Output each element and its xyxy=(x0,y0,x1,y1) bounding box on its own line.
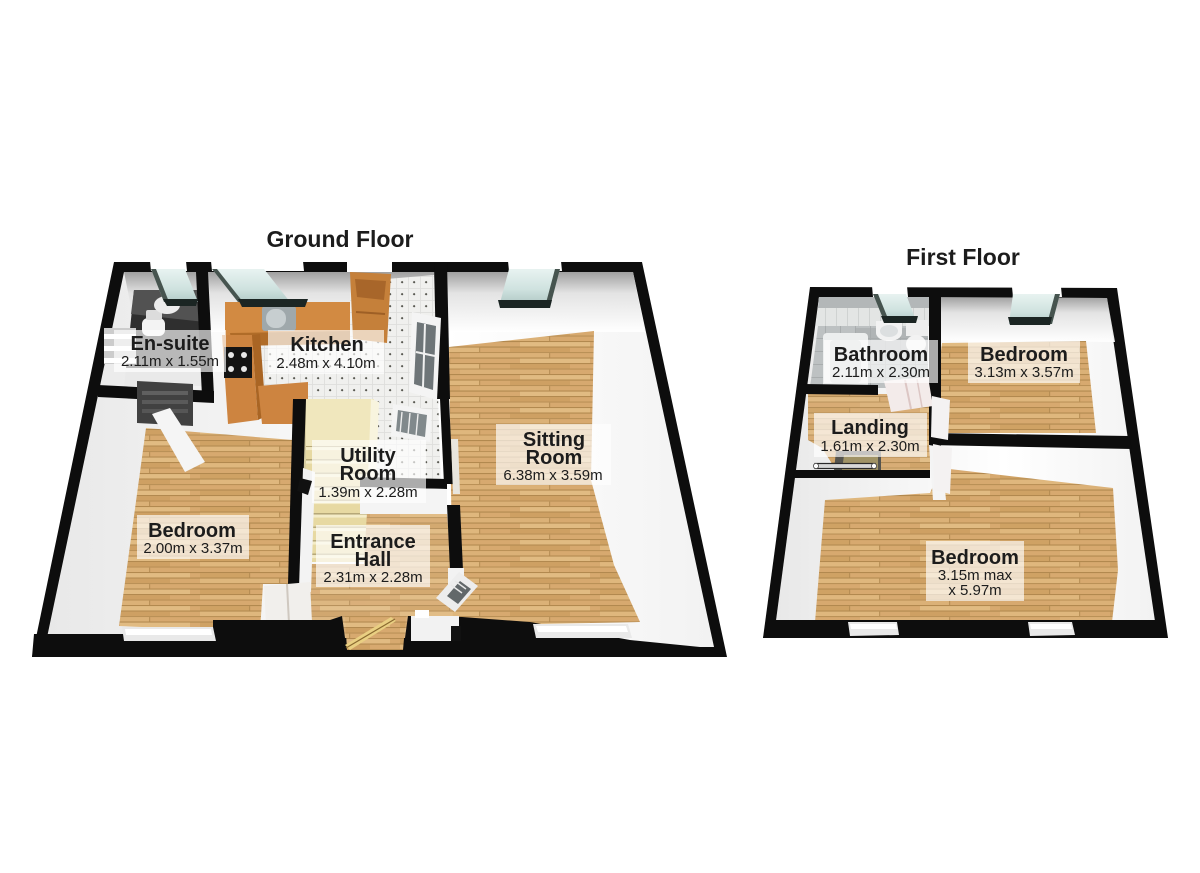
svg-text:3.13m x 3.57m: 3.13m x 3.57m xyxy=(974,364,1073,381)
svg-text:2.11m x 2.30m: 2.11m x 2.30m xyxy=(832,364,930,381)
svg-text:6.38m x 3.59m: 6.38m x 3.59m xyxy=(503,467,602,484)
svg-text:Room: Room xyxy=(526,447,583,469)
svg-text:2.31m x 2.28m: 2.31m x 2.28m xyxy=(323,569,422,586)
svg-text:Landing: Landing xyxy=(831,417,909,439)
svg-text:Hall: Hall xyxy=(355,549,392,571)
svg-text:Room: Room xyxy=(340,463,397,485)
svg-text:Bedroom: Bedroom xyxy=(148,520,236,542)
svg-text:Bedroom: Bedroom xyxy=(931,547,1019,569)
svg-text:x 5.97m: x 5.97m xyxy=(948,582,1001,599)
svg-text:2.48m x 4.10m: 2.48m x 4.10m xyxy=(276,355,375,372)
svg-text:First Floor: First Floor xyxy=(906,244,1020,270)
svg-text:Kitchen: Kitchen xyxy=(290,334,363,356)
svg-text:Bathroom: Bathroom xyxy=(834,344,928,366)
svg-text:2.00m x 3.37m: 2.00m x 3.37m xyxy=(143,540,242,557)
svg-text:1.39m x 2.28m: 1.39m x 2.28m xyxy=(318,484,417,501)
svg-text:En-suite: En-suite xyxy=(131,333,210,355)
svg-text:Bedroom: Bedroom xyxy=(980,344,1068,366)
svg-text:Ground Floor: Ground Floor xyxy=(267,226,414,252)
svg-text:1.61m x 2.30m: 1.61m x 2.30m xyxy=(820,438,919,455)
svg-text:2.11m x 1.55m: 2.11m x 1.55m xyxy=(121,353,219,370)
